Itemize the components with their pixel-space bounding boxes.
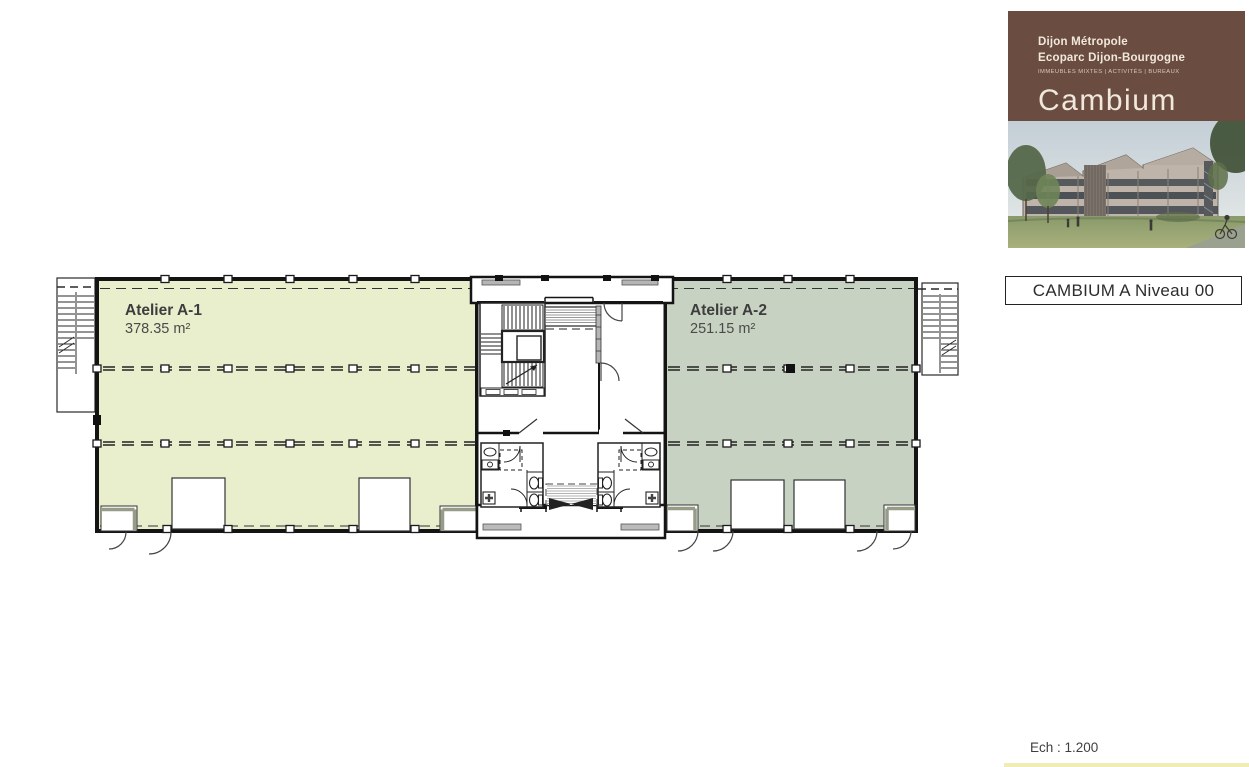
page-edge-artifact	[1004, 763, 1249, 767]
entrance-steps	[545, 307, 598, 329]
floor-plan-svg: Atelier A-1 378.35 m² Atelier A-2 251.15…	[0, 0, 1005, 767]
door-recess	[731, 480, 784, 529]
glazed-partition	[596, 306, 601, 363]
building-rendering-svg	[1008, 121, 1245, 248]
org-name: Dijon Métropole	[1038, 34, 1245, 50]
page: Atelier A-1 378.35 m² Atelier A-2 251.15…	[0, 0, 1249, 767]
room-a1-area: 378.35 m²	[125, 321, 190, 337]
building-rendering	[1008, 121, 1245, 248]
room-atelier-a2: Atelier A-2 251.15 m²	[665, 279, 916, 531]
room-a2-name: Atelier A-2	[690, 302, 767, 319]
brand-title: Cambium	[1038, 84, 1245, 118]
exterior-stair-east	[918, 283, 958, 375]
room-a1-name: Atelier A-1	[125, 302, 202, 319]
door-recess	[794, 480, 845, 529]
brand-panel: Dijon Métropole Ecoparc Dijon-Bourgogne …	[1008, 11, 1245, 121]
door-recess	[172, 478, 225, 529]
south-facade-band	[477, 505, 665, 538]
door-recess	[359, 478, 410, 531]
room-atelier-a1: Atelier A-1 378.35 m²	[93, 279, 477, 531]
scale-note: Ech : 1.200	[1030, 740, 1098, 755]
exterior-stair-west	[57, 278, 95, 412]
stair-elevator-block	[480, 303, 545, 396]
wc-block	[481, 443, 543, 507]
project-name: Ecoparc Dijon-Bourgogne	[1038, 50, 1245, 66]
floor-plan: Atelier A-1 378.35 m² Atelier A-2 251.15…	[0, 0, 1005, 767]
wc-block-mirrored	[598, 443, 660, 507]
room-a2-area: 251.15 m²	[690, 321, 755, 337]
wall-marker	[93, 415, 101, 425]
drawing-title: CAMBIUM A Niveau 00	[1033, 281, 1214, 301]
north-facade-band	[471, 275, 673, 303]
central-core	[471, 275, 673, 538]
drawing-title-box: CAMBIUM A Niveau 00	[1005, 276, 1242, 305]
tagline: IMMEUBLES MIXTES | ACTIVITÉS | BUREAUX	[1038, 69, 1245, 75]
